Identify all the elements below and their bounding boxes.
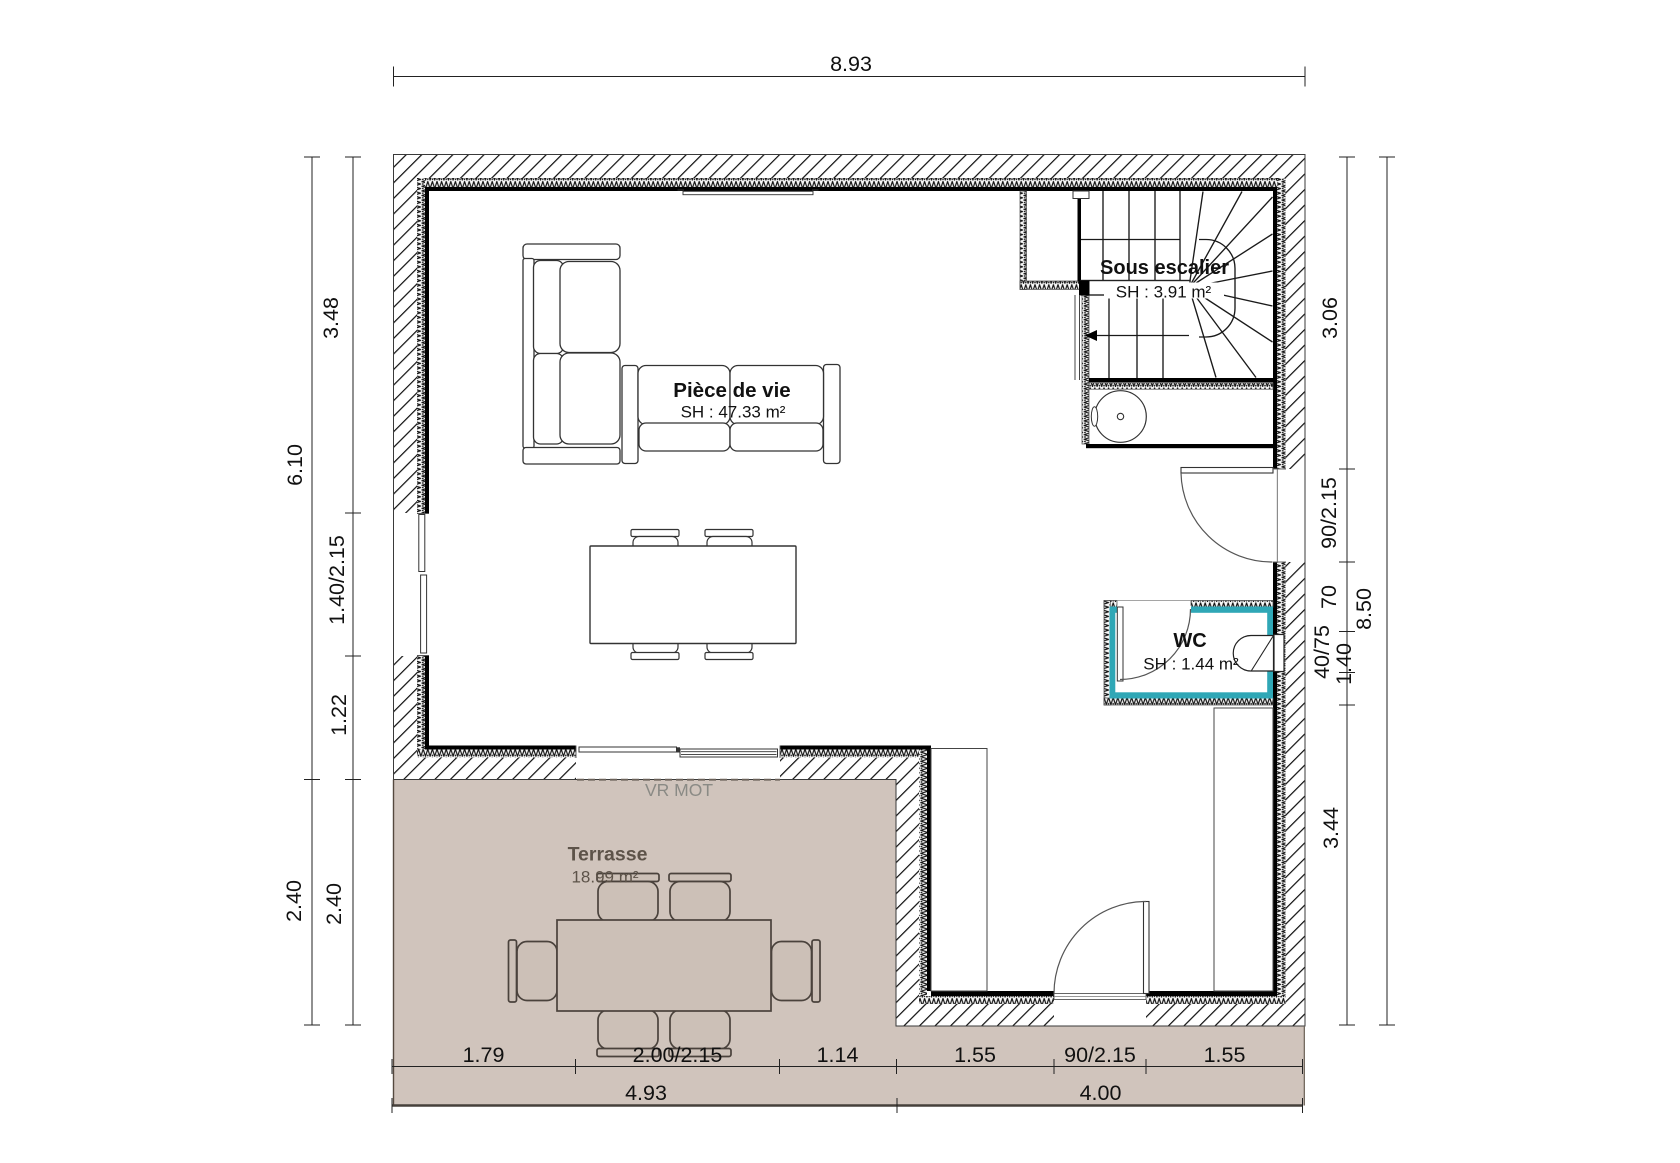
svg-text:1.14: 1.14	[817, 1043, 859, 1067]
svg-text:VR MOT: VR MOT	[645, 780, 713, 800]
svg-text:4.93: 4.93	[625, 1081, 667, 1105]
svg-text:Terrasse: Terrasse	[568, 844, 648, 866]
svg-text:WC: WC	[1173, 630, 1206, 652]
svg-text:18.99 m²: 18.99 m²	[571, 868, 638, 887]
svg-text:1.40/2.15: 1.40/2.15	[325, 535, 349, 625]
svg-text:1.22: 1.22	[327, 694, 351, 736]
svg-text:SH : 3.91 m²: SH : 3.91 m²	[1116, 283, 1212, 302]
svg-text:8.50: 8.50	[1352, 588, 1376, 630]
svg-text:SH : 1.44 m²: SH : 1.44 m²	[1143, 655, 1239, 674]
svg-text:SH : 47.33 m²: SH : 47.33 m²	[681, 403, 786, 422]
svg-text:4.00: 4.00	[1080, 1081, 1122, 1105]
svg-text:1.79: 1.79	[463, 1043, 505, 1067]
svg-text:Pièce de vie: Pièce de vie	[673, 379, 790, 402]
svg-text:70: 70	[1317, 585, 1341, 609]
svg-text:2.40: 2.40	[322, 883, 346, 925]
svg-text:Sous escalier: Sous escalier	[1100, 257, 1229, 279]
svg-text:1.55: 1.55	[954, 1043, 996, 1067]
svg-text:6.10: 6.10	[283, 444, 307, 486]
svg-text:3.06: 3.06	[1318, 297, 1342, 339]
svg-text:3.48: 3.48	[319, 297, 343, 339]
svg-text:1.55: 1.55	[1204, 1043, 1246, 1067]
svg-text:1.40: 1.40	[1332, 643, 1356, 685]
svg-text:90/2.15: 90/2.15	[1317, 477, 1341, 549]
svg-text:2.00/2.15: 2.00/2.15	[633, 1043, 723, 1067]
svg-text:3.44: 3.44	[1319, 807, 1343, 849]
svg-text:2.40: 2.40	[282, 880, 306, 922]
svg-text:90/2.15: 90/2.15	[1064, 1043, 1136, 1067]
svg-text:8.93: 8.93	[830, 52, 872, 76]
svg-text:40/75: 40/75	[1310, 625, 1334, 679]
